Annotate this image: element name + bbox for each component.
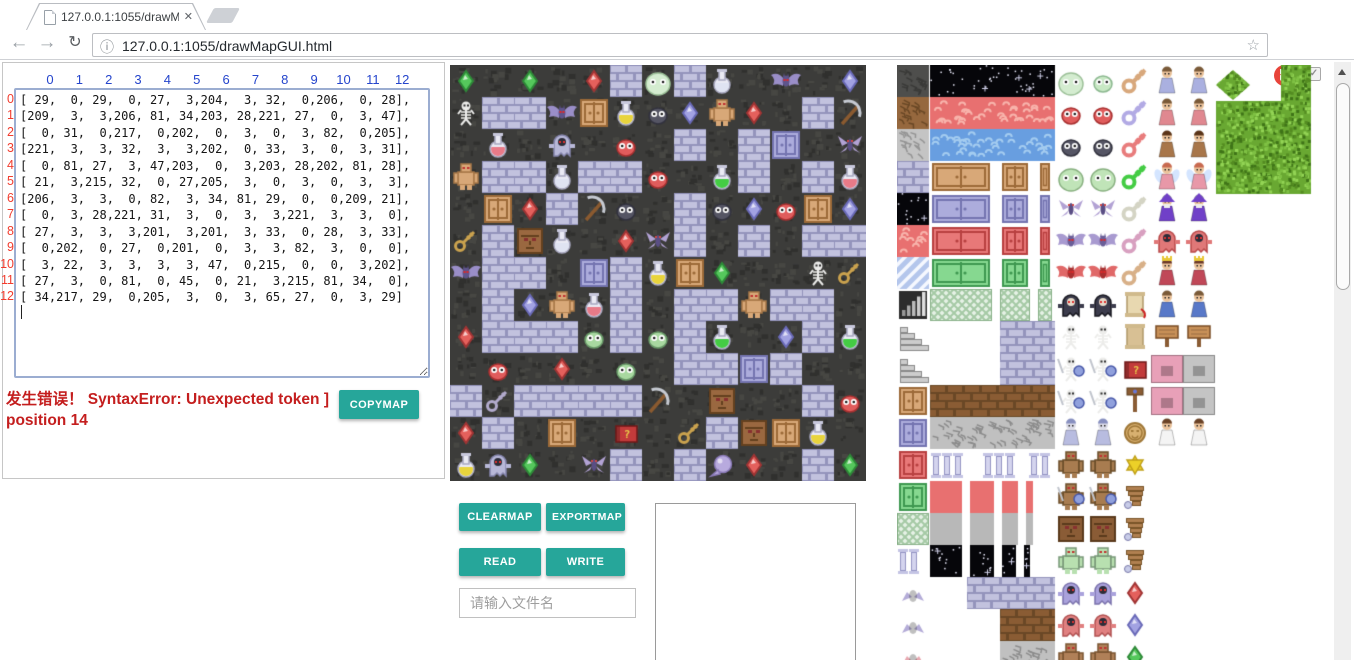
col-header-1: 1 <box>67 72 91 87</box>
row-header-4: 4 <box>0 158 14 174</box>
col-header-2: 2 <box>97 72 121 87</box>
col-header-0: 0 <box>38 72 62 87</box>
row-header-8: 8 <box>0 224 14 240</box>
col-header-8: 8 <box>273 72 297 87</box>
row-header-2: 2 <box>0 125 14 141</box>
exportmap-button[interactable]: EXPORTMAP <box>546 503 625 531</box>
filename-input[interactable] <box>459 588 636 618</box>
col-header-11: 11 <box>361 72 385 87</box>
file-listbox[interactable] <box>655 503 856 660</box>
row-header-6: 6 <box>0 191 14 207</box>
row-header-7: 7 <box>0 207 14 223</box>
browser-tab[interactable]: 127.0.0.1:1055/drawMa ✕ <box>27 4 205 30</box>
write-button[interactable]: WRITE <box>546 548 625 576</box>
copymap-button[interactable]: COPYMAP <box>339 390 419 419</box>
page-info-icon[interactable]: ⓘ <box>100 37 114 57</box>
page-scrollbar[interactable] <box>1334 62 1351 660</box>
row-header-1: 1 <box>0 108 14 124</box>
row-header-3: 3 <box>0 141 14 157</box>
forward-icon[interactable]: → <box>34 30 60 58</box>
scrollbar-thumb[interactable] <box>1336 83 1350 290</box>
col-header-6: 6 <box>214 72 238 87</box>
browser-window: 127.0.0.1:1055/drawMa ✕ ✕ ← → ↻ ⓘ 127.0.… <box>0 0 1354 660</box>
row-header-10: 10 <box>0 257 14 273</box>
text-caret <box>21 305 22 319</box>
tab-close-icon[interactable]: ✕ <box>184 10 193 23</box>
new-tab-button[interactable] <box>206 8 240 23</box>
map-matrix-textarea[interactable] <box>14 88 430 378</box>
clearmap-button[interactable]: CLEARMAP <box>459 503 541 531</box>
row-header-12: 12 <box>0 289 14 305</box>
error-message: 发生错误！ SyntaxError: Unexpected token ]pos… <box>6 389 342 431</box>
col-header-10: 10 <box>332 72 356 87</box>
scrollbar-up-icon[interactable] <box>1338 69 1346 75</box>
row-header-0: 0 <box>0 92 14 108</box>
map-canvas[interactable] <box>450 65 866 481</box>
row-header-11: 11 <box>0 273 14 289</box>
browser-toolbar: ← → ↻ ⓘ 127.0.0.1:1055/drawMapGUI.html ☆… <box>0 30 1354 60</box>
reload-icon[interactable]: ↻ <box>62 30 88 58</box>
col-headers: 0123456789101112 <box>0 72 443 88</box>
col-header-7: 7 <box>243 72 267 87</box>
tab-title: 127.0.0.1:1055/drawMa <box>61 10 179 25</box>
tileset-canvas[interactable] <box>897 65 1330 660</box>
col-header-5: 5 <box>185 72 209 87</box>
bookmark-star-icon[interactable]: ☆ <box>1247 36 1260 54</box>
col-header-9: 9 <box>302 72 326 87</box>
col-header-3: 3 <box>126 72 150 87</box>
tab-strip: 127.0.0.1:1055/drawMa ✕ ✕ <box>0 0 1354 30</box>
page-icon <box>44 10 56 25</box>
col-header-12: 12 <box>390 72 414 87</box>
read-button[interactable]: READ <box>459 548 541 576</box>
row-header-5: 5 <box>0 174 14 190</box>
url-text[interactable]: 127.0.0.1:1055/drawMapGUI.html <box>122 38 332 54</box>
row-header-9: 9 <box>0 240 14 256</box>
col-header-4: 4 <box>155 72 179 87</box>
address-bar[interactable]: ⓘ 127.0.0.1:1055/drawMapGUI.html ☆ <box>92 33 1268 57</box>
